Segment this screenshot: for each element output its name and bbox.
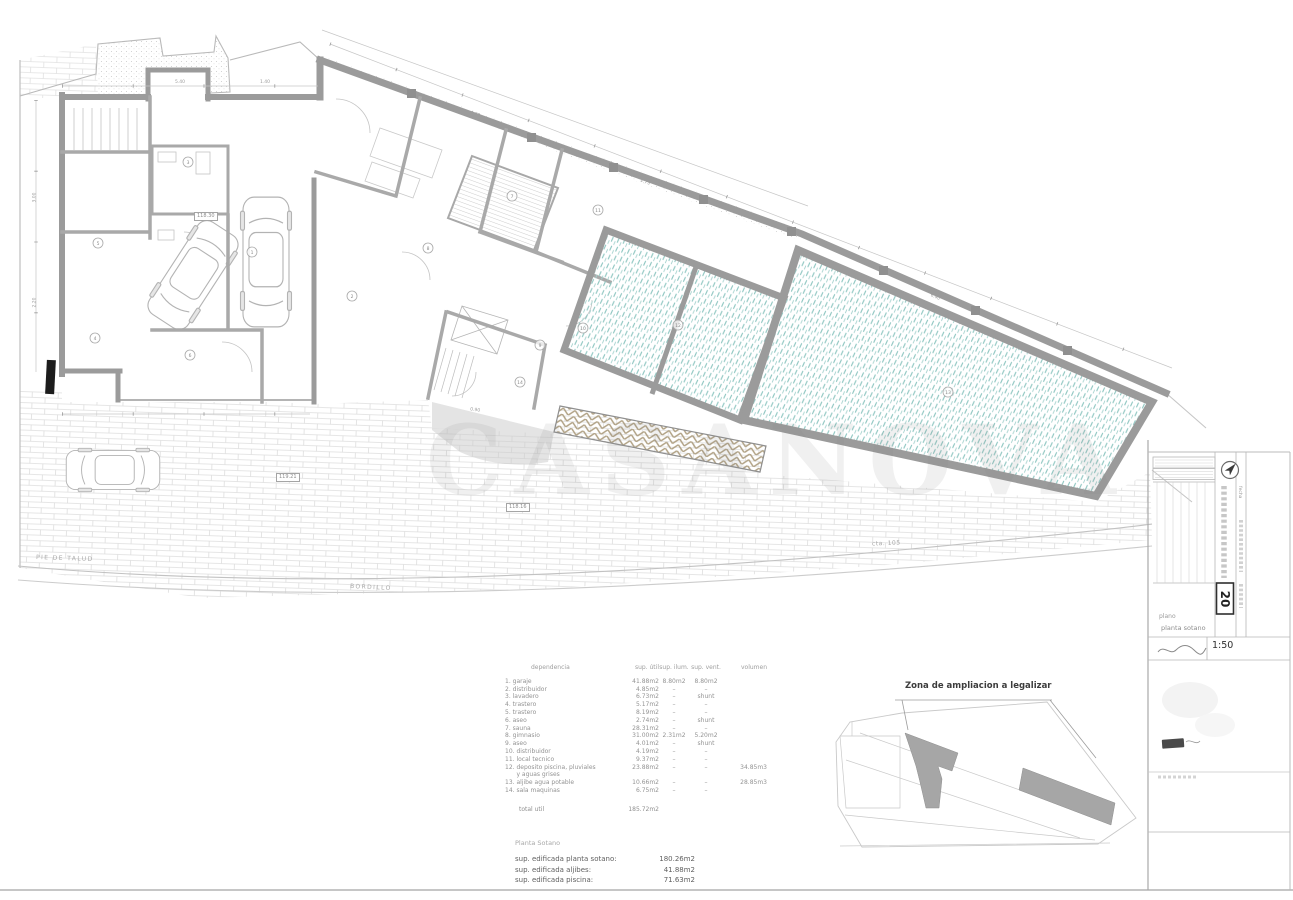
svg-text:2: 2: [351, 294, 354, 300]
area-row: 10. distribuidor4.19m2– –: [505, 748, 779, 756]
svg-text:6: 6: [189, 353, 192, 359]
dimension-label: 3.00: [33, 192, 38, 202]
area-row: 8. gimnasio31.00m22.31m2 5.20m2: [505, 732, 779, 740]
scale-scribble: [1158, 646, 1206, 655]
plano-label: plano: [1159, 613, 1176, 620]
svg-text:13: 13: [945, 390, 951, 396]
area-row: 6. aseo2.74m2– shunt: [505, 717, 779, 725]
svg-text:5: 5: [97, 241, 100, 247]
dimension-label: 5.40: [175, 80, 185, 85]
area-row: 3. lavadero6.73m2– shunt: [505, 693, 779, 701]
area-row: 2. distribuidor4.85m2– –: [505, 686, 779, 694]
area-row: 14. sala maquinas6.75m2– –: [505, 787, 779, 795]
area-row: 1. garaje41.88m28.80m2 8.80m2: [505, 678, 779, 686]
fecha-label: fecha: [1237, 486, 1242, 498]
svg-text:1: 1: [251, 250, 254, 256]
dimension-label: 2.20: [33, 297, 38, 307]
area-row: 7. sauna28.31m2– –: [505, 725, 779, 733]
summary-title: Planta Sotano: [515, 838, 695, 848]
label-cota-street: cta. 105: [872, 540, 901, 548]
svg-text:12: 12: [675, 323, 681, 329]
sheet-number: 20: [1211, 590, 1239, 608]
summary-row: sup. edificada piscina:71.63m2: [515, 875, 695, 885]
area-row: 9. aseo4.01m2– shunt: [505, 740, 779, 748]
svg-text:4: 4: [94, 336, 97, 342]
svg-text:14: 14: [517, 380, 523, 386]
svg-text:7: 7: [511, 194, 514, 200]
level-marker: 119.21: [276, 473, 300, 482]
svg-text:10: 10: [580, 326, 586, 332]
level-marker: 118.16: [506, 503, 530, 512]
dimension-label: 1.40: [260, 80, 270, 85]
areas-table-header: dependenciasup. útil sup. ilum.sup. vent…: [505, 664, 779, 672]
area-row: y aguas grises: [505, 771, 779, 779]
summary-row: sup. edificada aljibes:41.88m2: [515, 865, 695, 875]
areas-total-row: total util 185.72m2: [505, 806, 779, 814]
svg-text:9: 9: [539, 343, 542, 349]
areas-table-body: 1. garaje41.88m28.80m2 8.80m2 2. distrib…: [505, 678, 779, 795]
area-row: 12. deposito piscina, pluviales23.88m2– …: [505, 764, 779, 772]
signature-smudge: [1162, 738, 1185, 749]
area-row: 5. trastero8.19m2– –: [505, 709, 779, 717]
built-area-summary: Planta Sotano sup. edificada planta sota…: [515, 838, 695, 886]
floor-plan-sheet: { "watermark": "CASANOVA", "site": { "pi…: [0, 0, 1293, 900]
level-marker: 118.30: [194, 212, 218, 221]
scale-value: 1:50: [1212, 640, 1233, 651]
inset-label: Zona de ampliacion a legalizar: [905, 681, 1052, 691]
inset-key-plan: [836, 700, 1136, 847]
svg-text:8: 8: [427, 246, 430, 252]
watermark: CASANOVA: [426, 404, 1128, 517]
plano-value: planta sotano: [1161, 624, 1206, 632]
svg-text:3: 3: [187, 160, 190, 166]
area-row: 11. local tecnico9.37m2– –: [505, 756, 779, 764]
svg-text:11: 11: [595, 208, 601, 214]
summary-row: sup. edificada planta sotano:180.26m2: [515, 854, 695, 864]
area-row: 4. trastero5.17m2– –: [505, 701, 779, 709]
area-row: 13. aljibe agua potable10.66m2– –28.85m3: [505, 779, 779, 787]
areas-table: dependenciasup. útil sup. ilum.sup. vent…: [505, 664, 779, 814]
north-arrow-icon: [1222, 461, 1239, 478]
